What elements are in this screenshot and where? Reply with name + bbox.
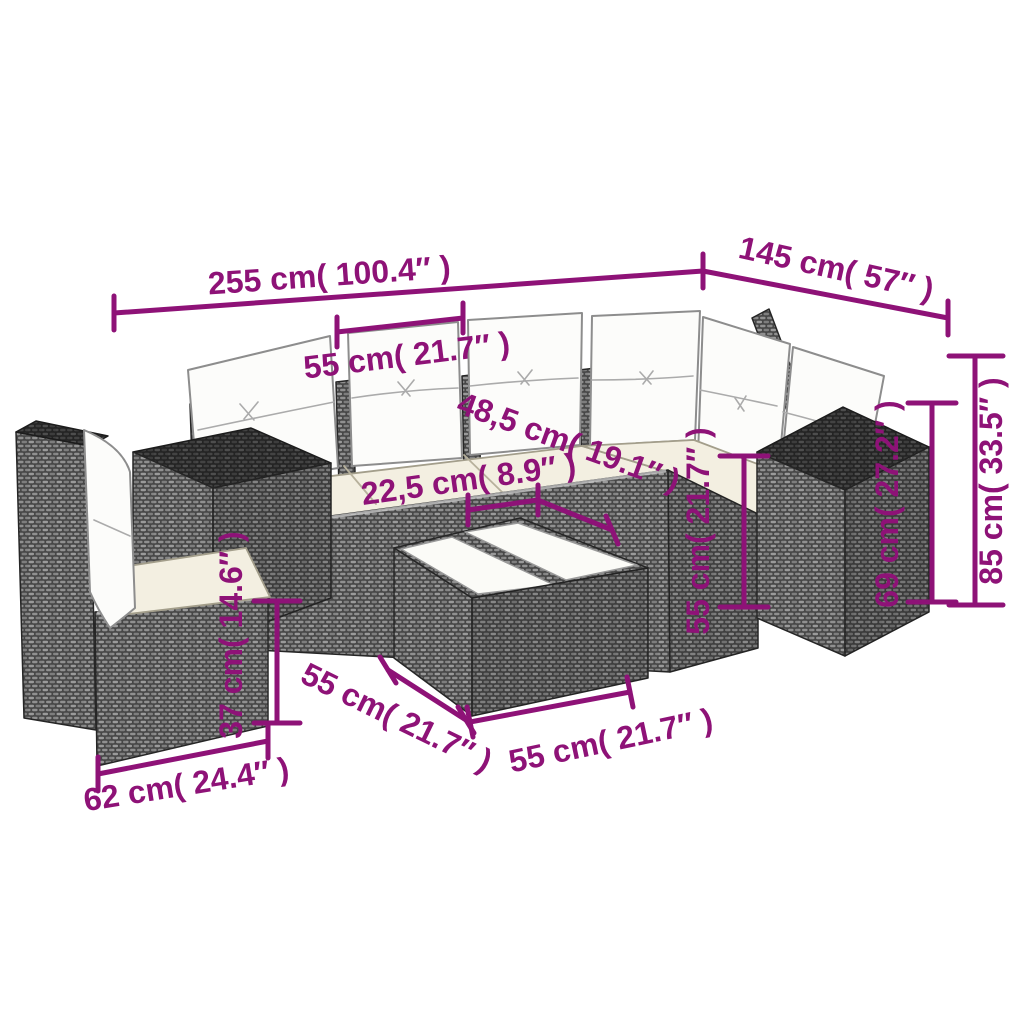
garden-sofa-dimension-diagram: 255 cm( 100.4″ ) 145 cm( 57″ ) 55 cm( 21… <box>0 0 1024 1024</box>
diagram-canvas: 255 cm( 100.4″ ) 145 cm( 57″ ) 55 cm( 21… <box>0 0 1024 1024</box>
dim-back-height-label: 85 cm( 33.5″ ) <box>973 377 1009 584</box>
chair-back-panel <box>16 432 96 730</box>
dim-corner-height-label: 55 cm( 21.7″ ) <box>680 427 716 634</box>
dim-cube-height-label: 69 cm( 27.2″ ) <box>869 400 905 607</box>
dim-table-side-b-label: 55 cm( 21.7″ ) <box>506 701 716 779</box>
dim-base-height-label: 37 cm( 14.6″ ) <box>213 531 249 738</box>
